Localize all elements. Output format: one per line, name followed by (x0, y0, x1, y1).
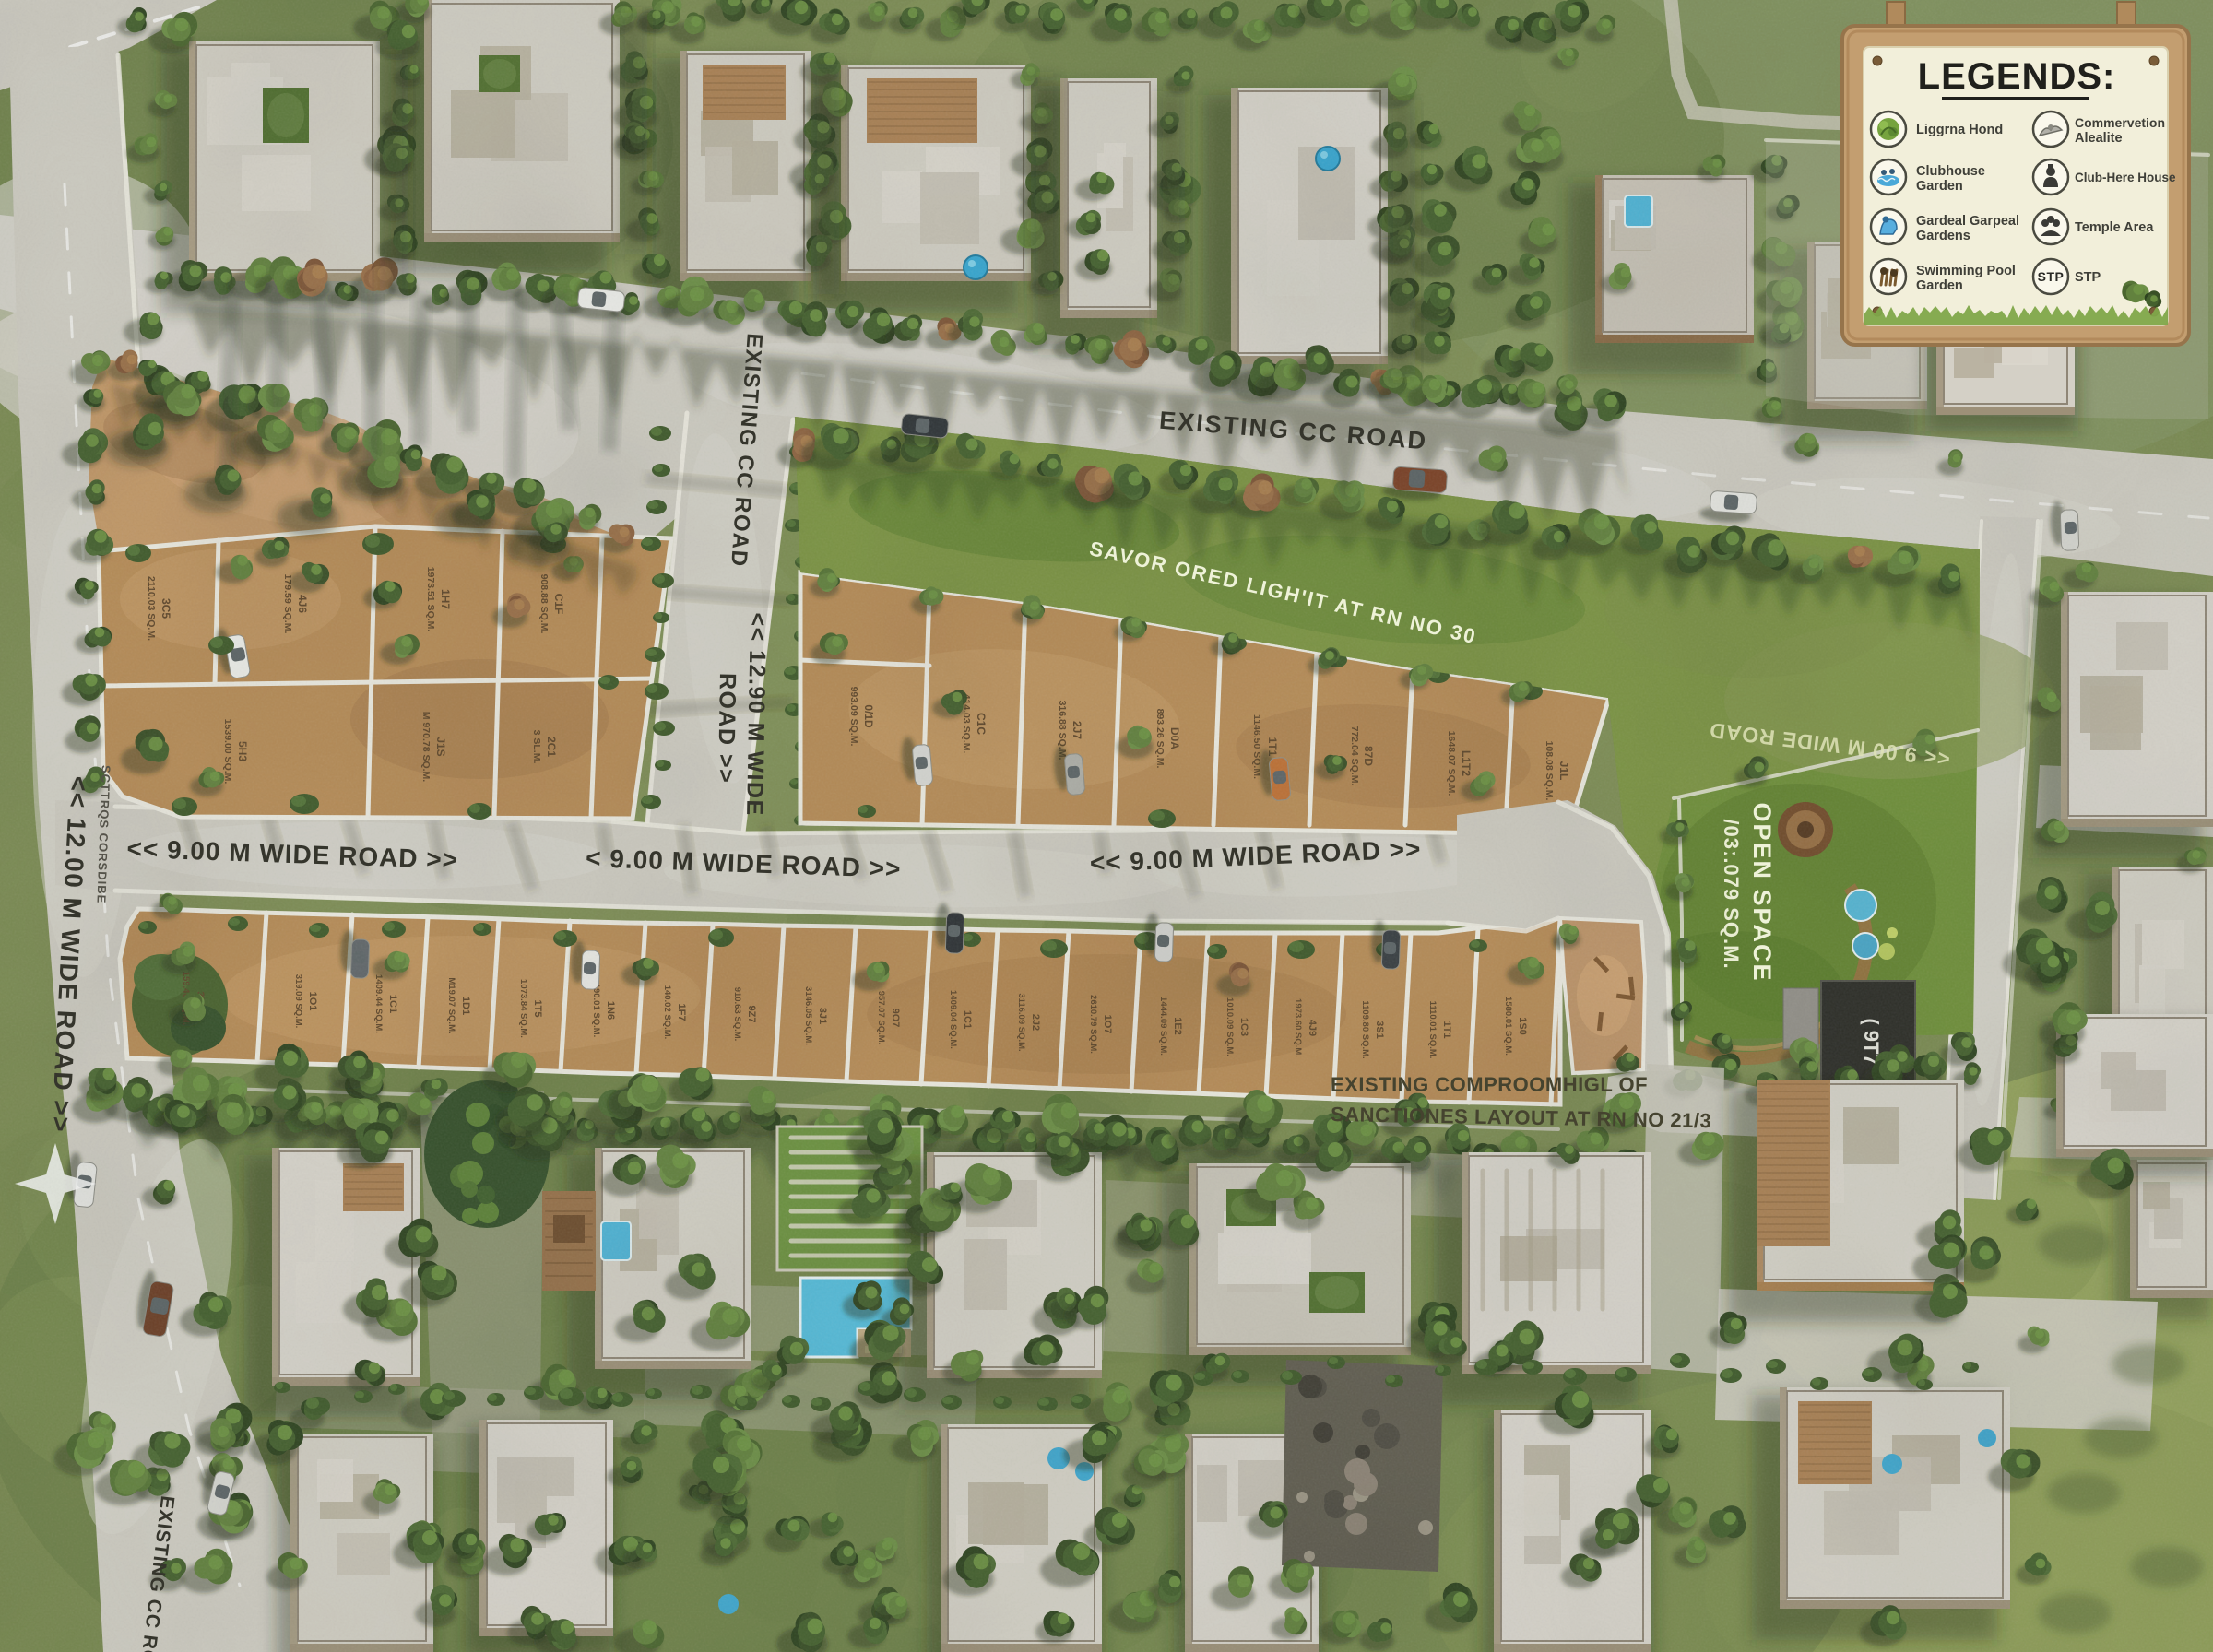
svg-text:EXISTING COMPROOMHIGL OF: EXISTING COMPROOMHIGL OF (1331, 1073, 1648, 1096)
svg-text:Clubhouse: Clubhouse (1916, 164, 1985, 179)
svg-text:STP: STP (2038, 269, 2065, 284)
svg-text:<< 12.90 M WIDE: << 12.90 M WIDE (741, 612, 771, 817)
svg-text:LEGENDS:: LEGENDS: (1918, 56, 2116, 97)
svg-text:Commervetion: Commervetion (2075, 115, 2165, 130)
svg-text:Swimming Pool: Swimming Pool (1916, 264, 2016, 278)
svg-text:STP: STP (2075, 270, 2101, 285)
svg-text:Liggrna Hond: Liggrna Hond (1916, 123, 2003, 137)
svg-text:Gardens: Gardens (1916, 229, 1970, 243)
svg-text:Club-Here House: Club-Here House (2075, 171, 2176, 184)
svg-text:ROAD >>: ROAD >> (713, 673, 740, 785)
svg-text:Alealite: Alealite (2075, 131, 2123, 146)
svg-text:Garden: Garden (1916, 179, 1963, 194)
svg-text:Temple Area: Temple Area (2075, 220, 2154, 235)
svg-text:OPEN SPACE: OPEN SPACE (1748, 802, 1776, 982)
svg-text:Garden: Garden (1916, 278, 1963, 293)
svg-text:Gardeal Garpeal: Gardeal Garpeal (1916, 214, 2019, 229)
svg-text:/03ː.079 SQ.M.: /03ː.079 SQ.M. (1720, 819, 1743, 969)
